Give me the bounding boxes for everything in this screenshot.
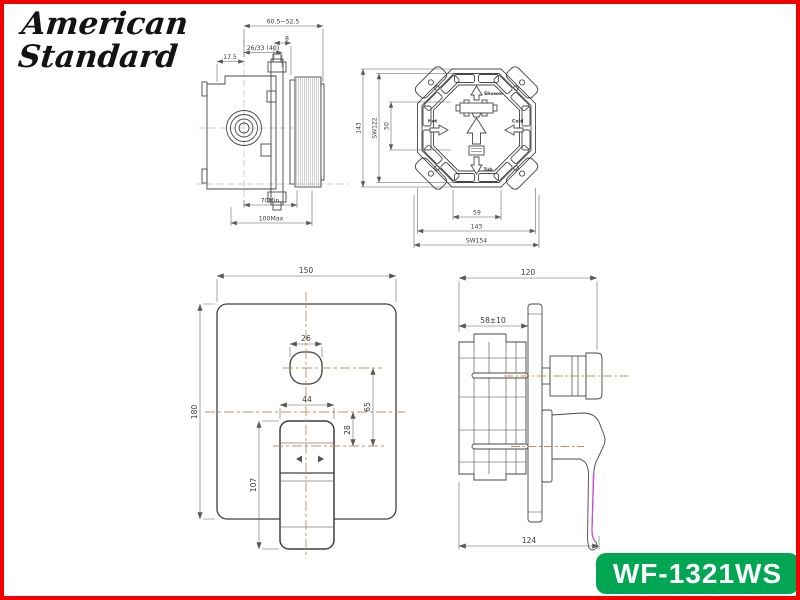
dim-handle-width: 44 (302, 395, 312, 404)
dim-center-to-pivot: 28 (343, 425, 352, 435)
dim-port-spacing-v: 50 (384, 122, 391, 130)
dim-plate-height: 180 (190, 405, 199, 420)
plaster-guard-hatching (297, 78, 321, 186)
dim-depth-min: 70Min (261, 198, 280, 205)
dim-port-spacing-h: 59 (473, 210, 481, 217)
drawing-valve-top-view: 60.5~52.5 8 26/33 (40) 17.5 70Min 100Max (197, 12, 357, 244)
cartridge-symbol (456, 100, 497, 117)
dim-body-height: 143 (356, 122, 363, 134)
valve-body-geometry (202, 54, 324, 210)
dim-knob-to-pivot: 65 (363, 402, 372, 412)
dim-plate-width: 150 (299, 266, 314, 275)
tub-port-symbol (469, 146, 484, 155)
dim-handle-length: 107 (249, 478, 258, 493)
dim-projection: 120 (521, 268, 536, 277)
valve-body-side-geometry (459, 304, 605, 550)
dimensions: 60.5~52.5 8 26/33 (40) 17.5 70Min 100Max (217, 19, 323, 227)
dim-embed-range: 60.5~52.5 (267, 19, 300, 26)
centerlines-gray (197, 40, 349, 204)
drawing-trim-side-view: 120 58±10 124 (444, 262, 674, 572)
port-label-hot: Hot (428, 119, 438, 125)
port-label-tub: Tub (484, 167, 494, 173)
dim-stub: 8 (285, 36, 289, 43)
brand-logo: American Standard (17, 8, 190, 74)
dim-edge-to-axis: 17.5 (223, 54, 237, 61)
dim-flats-vertical: SW122 (372, 117, 379, 138)
dim-knob-width: 26 (301, 334, 311, 343)
dim-total-depth: 124 (522, 536, 537, 545)
drawing-trim-front-view: 150 180 26 44 65 28 107 (187, 262, 412, 564)
lever-handle-side (542, 410, 605, 550)
port-label-cold: Cold (512, 119, 523, 125)
brand-logo-line1: American (20, 8, 190, 41)
port-label-shower: Shower (484, 91, 504, 97)
spec-sheet: American Standard (0, 0, 800, 600)
brand-logo-line2: Standard (17, 41, 187, 74)
dim-cover: 26/33 (40) (247, 45, 280, 52)
handle-geometry (280, 421, 334, 549)
dim-body-width: 143 (471, 224, 483, 231)
model-badge: WF-1321WS (596, 553, 799, 594)
dim-depth-max: 100Max (259, 216, 284, 223)
dim-flats-horizontal: SW154 (466, 238, 487, 245)
drawing-rough-in-front-view: Shower Hot Cold Tub 143 SW122 50 59 143 … (356, 40, 601, 258)
dim-wall-depth: 58±10 (480, 316, 506, 325)
